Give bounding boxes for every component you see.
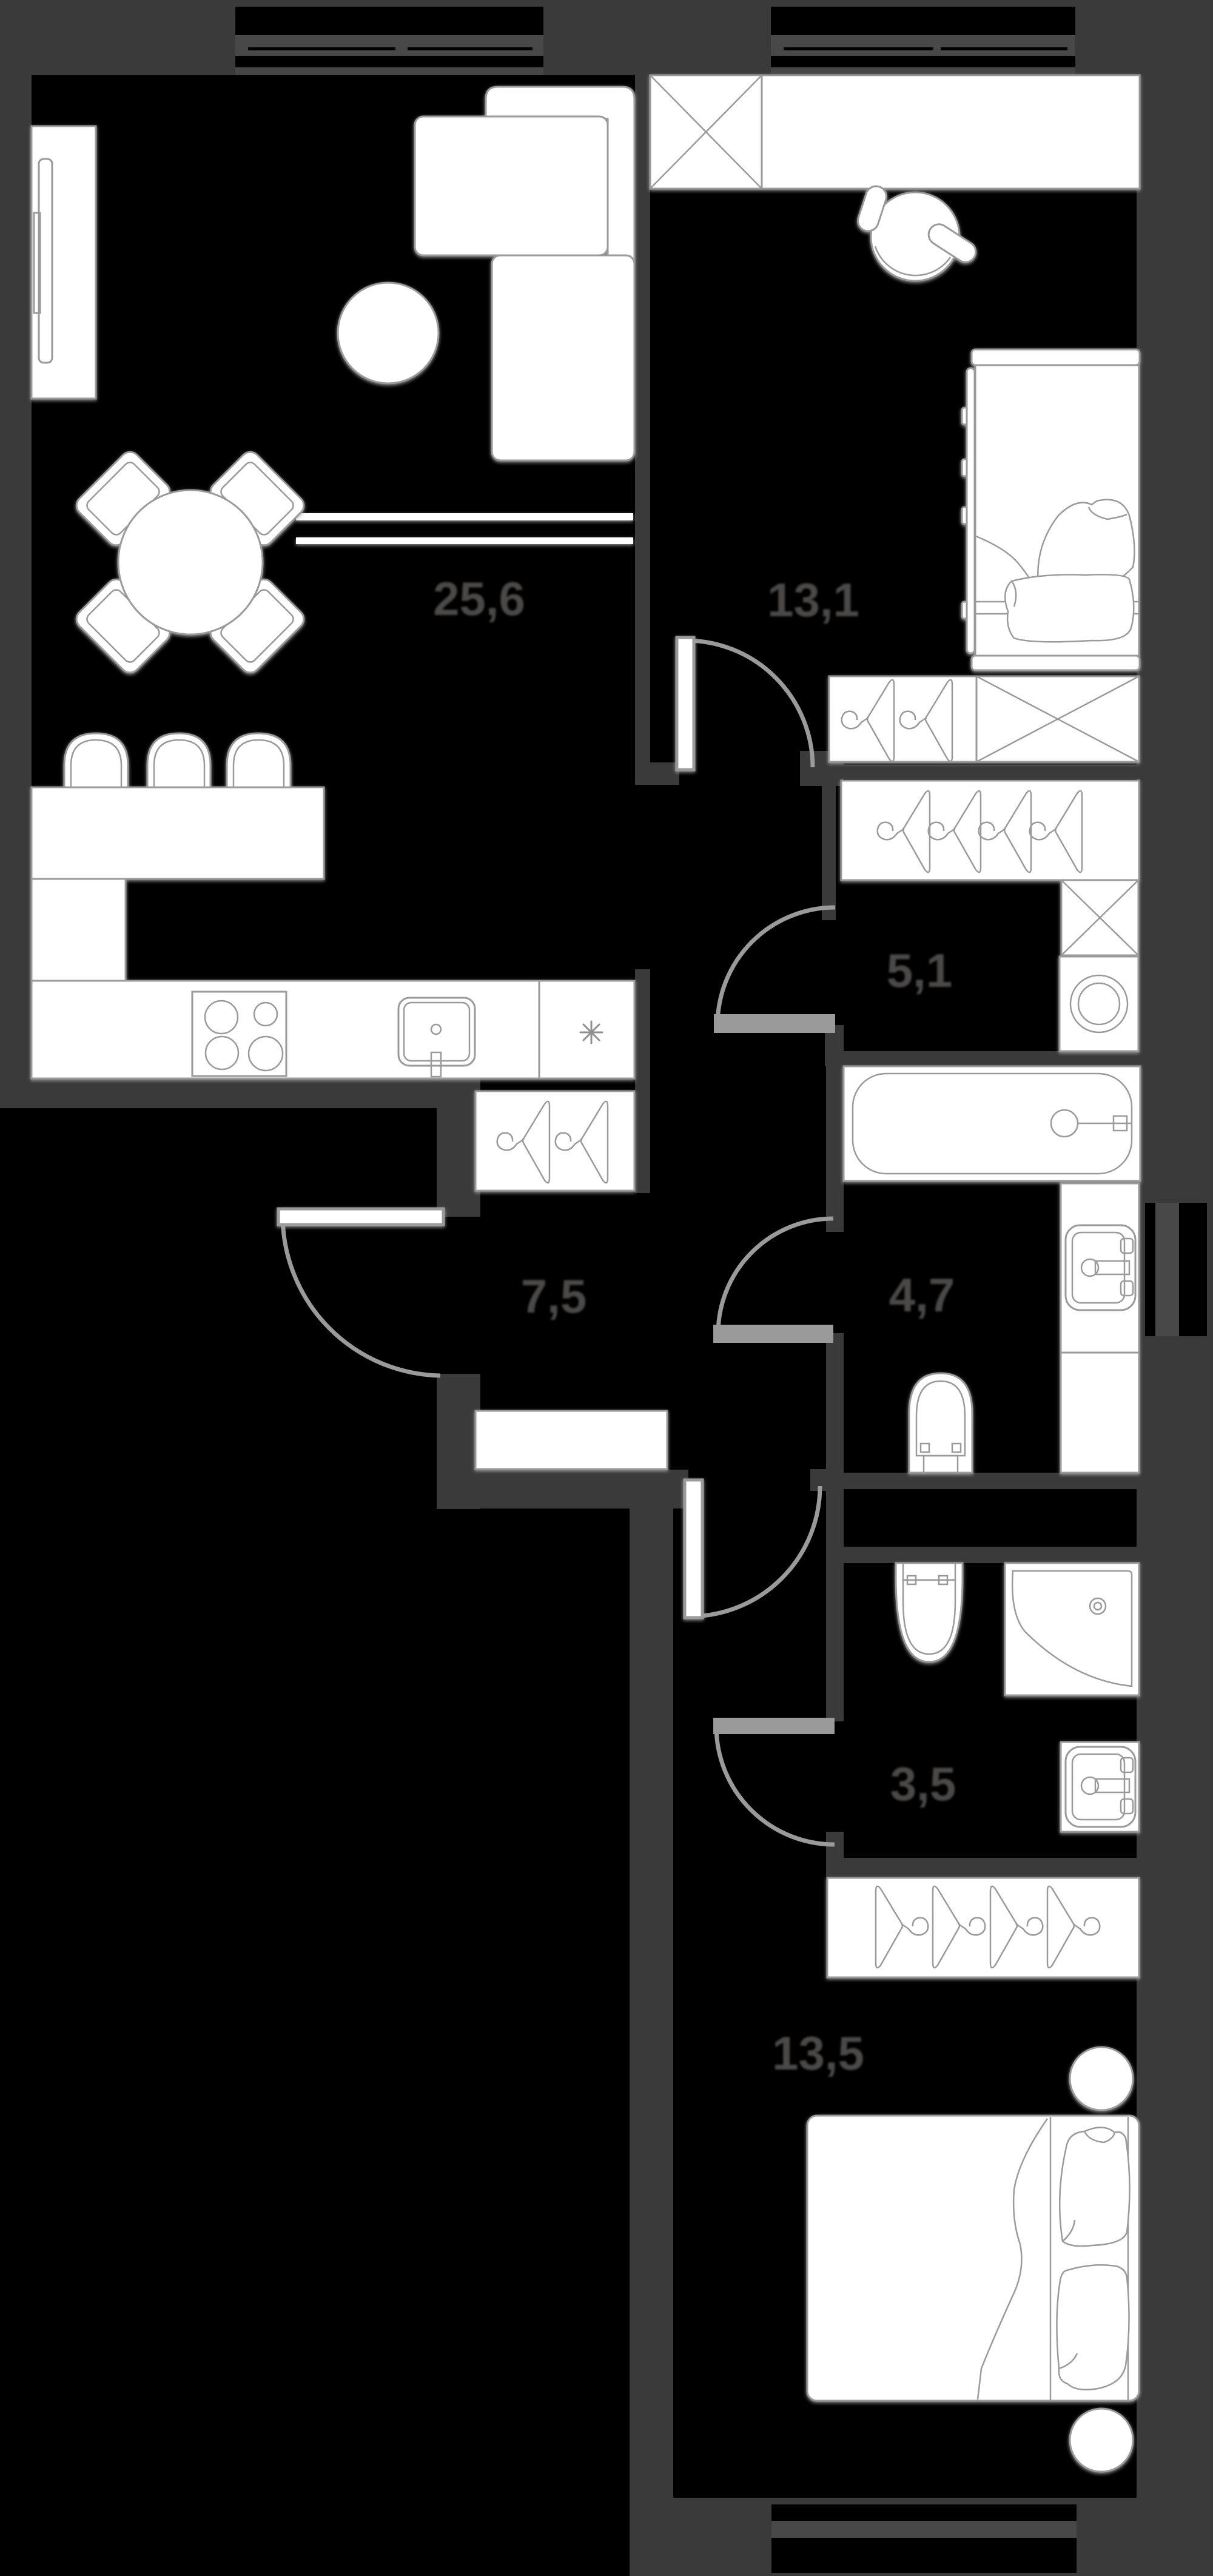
svg-text:13,1: 13,1 (767, 573, 859, 627)
svg-text:7,5: 7,5 (521, 1270, 586, 1323)
svg-text:3,5: 3,5 (890, 1757, 956, 1811)
svg-text:13,5: 13,5 (772, 2026, 864, 2080)
svg-text:25,6: 25,6 (433, 572, 525, 625)
svg-text:5,1: 5,1 (887, 944, 952, 997)
svg-text:4,7: 4,7 (889, 1268, 955, 1322)
